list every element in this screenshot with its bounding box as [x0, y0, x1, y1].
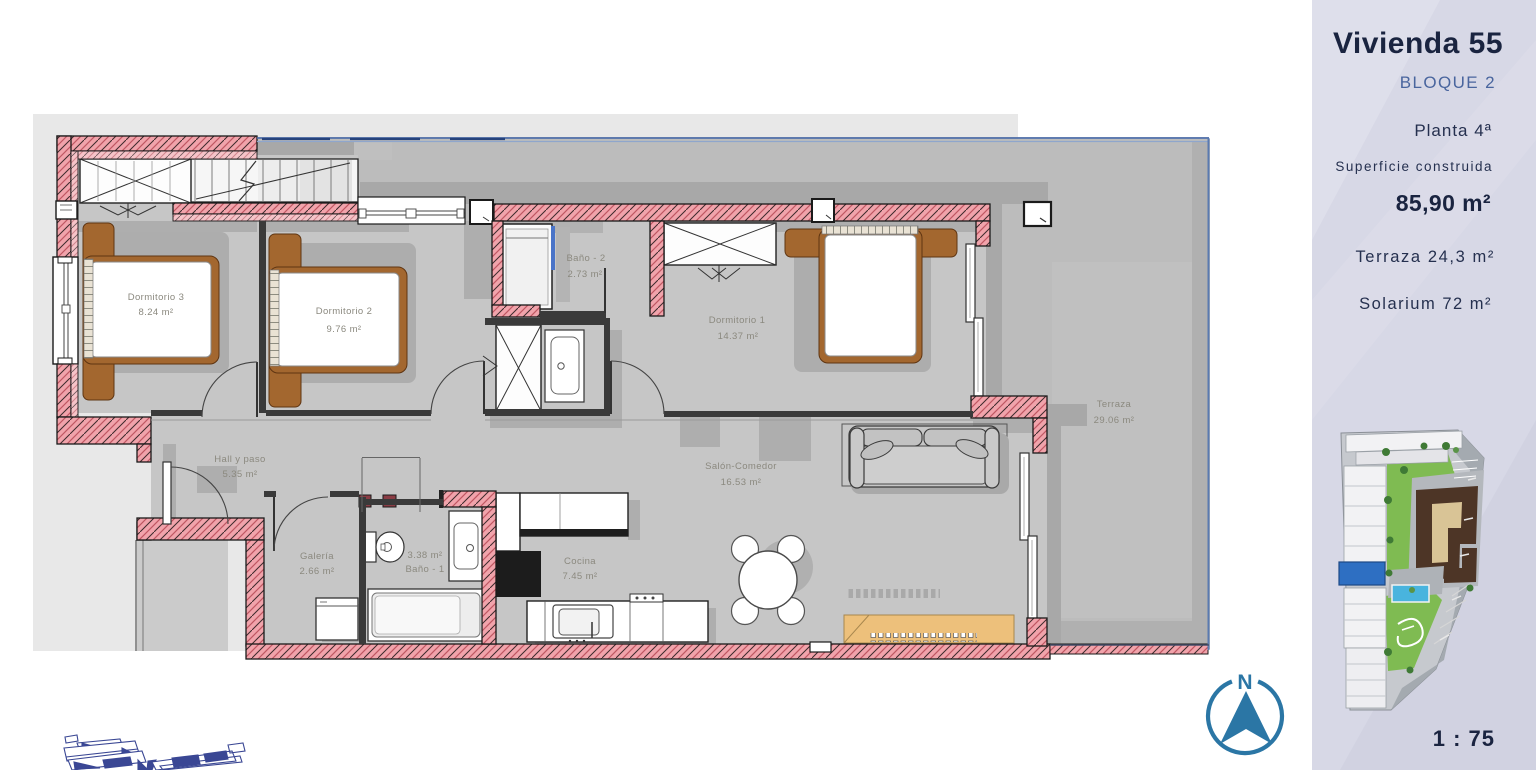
svg-text:29.06 m²: 29.06 m² — [1094, 415, 1135, 426]
svg-text:1 : 75: 1 : 75 — [1433, 726, 1495, 751]
svg-text:5.35 m²: 5.35 m² — [222, 469, 257, 480]
svg-text:Salón-Comedor: Salón-Comedor — [705, 461, 777, 472]
svg-text:2.73 m²: 2.73 m² — [567, 269, 602, 280]
svg-text:Baño - 1: Baño - 1 — [405, 564, 444, 575]
svg-text:Baño - 2: Baño - 2 — [566, 253, 605, 264]
svg-text:8.24 m²: 8.24 m² — [138, 307, 173, 318]
svg-text:7.45 m²: 7.45 m² — [562, 571, 597, 582]
svg-text:N: N — [1237, 671, 1252, 694]
svg-text:9.76 m²: 9.76 m² — [326, 324, 361, 335]
svg-text:Superficie construida: Superficie construida — [1335, 159, 1493, 174]
svg-text:85,90 m²: 85,90 m² — [1396, 190, 1491, 216]
svg-text:Vivienda 55: Vivienda 55 — [1333, 27, 1503, 60]
svg-text:Hall y paso: Hall y paso — [214, 454, 265, 465]
svg-text:Solarium 72 m²: Solarium 72 m² — [1359, 295, 1492, 313]
svg-text:Terraza: Terraza — [1097, 399, 1132, 410]
svg-text:2.66 m²: 2.66 m² — [299, 566, 334, 577]
svg-text:BLOQUE 2: BLOQUE 2 — [1400, 73, 1496, 92]
svg-text:Cocina: Cocina — [564, 556, 596, 567]
svg-text:Planta 4ª: Planta 4ª — [1414, 121, 1492, 140]
svg-text:Dormitorio 1: Dormitorio 1 — [709, 315, 766, 326]
svg-text:Dormitorio 3: Dormitorio 3 — [128, 292, 185, 303]
svg-text:16.53 m²: 16.53 m² — [721, 477, 762, 488]
svg-text:3.38 m²: 3.38 m² — [407, 550, 442, 561]
svg-text:14.37 m²: 14.37 m² — [718, 331, 759, 342]
svg-text:Galería: Galería — [300, 551, 334, 562]
svg-text:Terraza 24,3 m²: Terraza 24,3 m² — [1355, 248, 1495, 266]
svg-text:Dormitorio 2: Dormitorio 2 — [316, 306, 373, 317]
